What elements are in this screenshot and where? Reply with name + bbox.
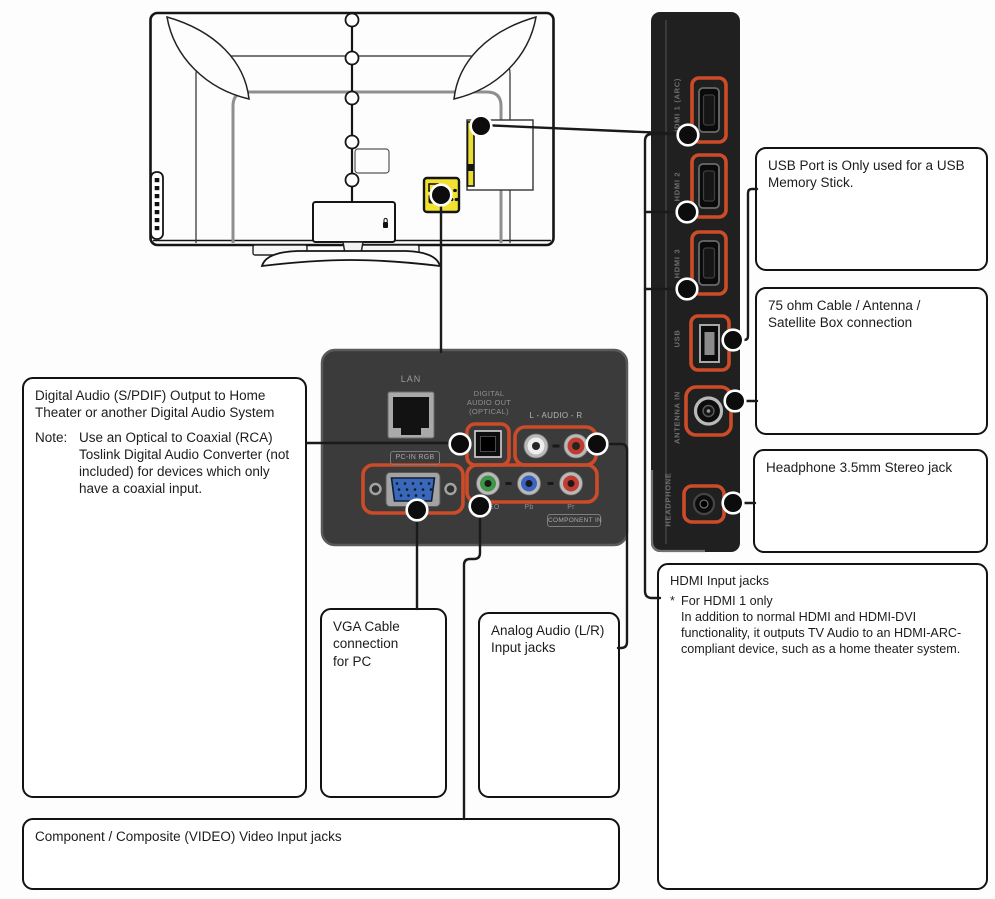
vga-callout-text: VGA Cable connection for PC: [333, 618, 434, 670]
rear-ports-label: [424, 178, 459, 212]
lock-icon: [383, 222, 388, 228]
hdmi-note-body: In addition to normal HDMI and HDMI-DVI …: [681, 609, 961, 657]
hdmi-callout-box: HDMI Input jacks * For HDMI 1 only In ad…: [657, 563, 988, 890]
digital-audio-note-text: Use an Optical to Coaxial (RCA) Toslink …: [79, 429, 289, 498]
usb-callout-box: USB Port is Only used for a USB Memory S…: [755, 147, 988, 271]
headphone-port-label: HEADPHONE: [664, 455, 673, 545]
note-label: Note:: [35, 429, 79, 498]
analog-audio-callout-text: Analog Audio (L/R) Input jacks: [491, 622, 607, 657]
antenna-callout-box: 75 ohm Cable / Antenna / Satellite Box c…: [755, 287, 988, 435]
lan-label: LAN: [389, 374, 433, 384]
hdmi-note-title: For HDMI 1 only: [681, 594, 773, 608]
digital-audio-callout-box: Digital Audio (S/PDIF) Output to Home Th…: [22, 377, 307, 798]
headphone-callout-text: Headphone 3.5mm Stereo jack: [766, 459, 975, 476]
usb-callout-text: USB Port is Only used for a USB Memory S…: [768, 157, 975, 192]
pb-label: Pb: [514, 504, 544, 511]
component-in-label: COMPONENT IN: [547, 514, 601, 527]
component-callout-box: Component / Composite (VIDEO) Video Inpu…: [22, 818, 620, 890]
video-label: VIDEO: [468, 504, 508, 511]
side-control-buttons: [151, 172, 163, 239]
recessed-panel-area: [467, 120, 533, 190]
digital-audio-callout-title: Digital Audio (S/PDIF) Output to Home Th…: [35, 387, 294, 422]
analog-audio-callout-box: Analog Audio (L/R) Input jacks: [478, 612, 620, 798]
digital-audio-out-label-line3: (OPTICAL): [454, 407, 524, 416]
hdmi-callout-title: HDMI Input jacks: [670, 573, 975, 590]
digital-audio-out-label-line2: AUDIO OUT: [454, 398, 524, 407]
pc-in-rgb-label: PC-IN RGB: [390, 451, 440, 465]
antenna-callout-text: 75 ohm Cable / Antenna / Satellite Box c…: [768, 297, 975, 332]
pr-label: Pr: [556, 504, 586, 511]
antenna-port-label: ANTENNA IN: [673, 373, 682, 463]
vga-callout-box: VGA Cable connection for PC: [320, 608, 447, 798]
hdmi3-port-label: HDMI 3: [673, 234, 682, 294]
rating-plate: [355, 149, 389, 173]
component-callout-text: Component / Composite (VIDEO) Video Inpu…: [35, 828, 607, 845]
connection-diagram-page: LAN DIGITAL AUDIO OUT (OPTICAL) L - AUDI…: [0, 0, 995, 899]
usb-port-label: USB: [673, 319, 682, 359]
lan-port: [388, 392, 434, 438]
tv-back-illustration: [151, 13, 554, 266]
headphone-callout-box: Headphone 3.5mm Stereo jack: [753, 449, 988, 553]
audio-lr-label: L - AUDIO - R: [516, 411, 596, 420]
digital-audio-out-label-line1: DIGITAL: [454, 389, 524, 398]
hdmi2-port-label: HDMI 2: [673, 157, 682, 217]
side-connector-strip-edge: [468, 122, 475, 186]
hdmi1-port-label: HDMI 1 (ARC): [673, 67, 682, 147]
hdmi-note-marker: *: [670, 593, 681, 657]
